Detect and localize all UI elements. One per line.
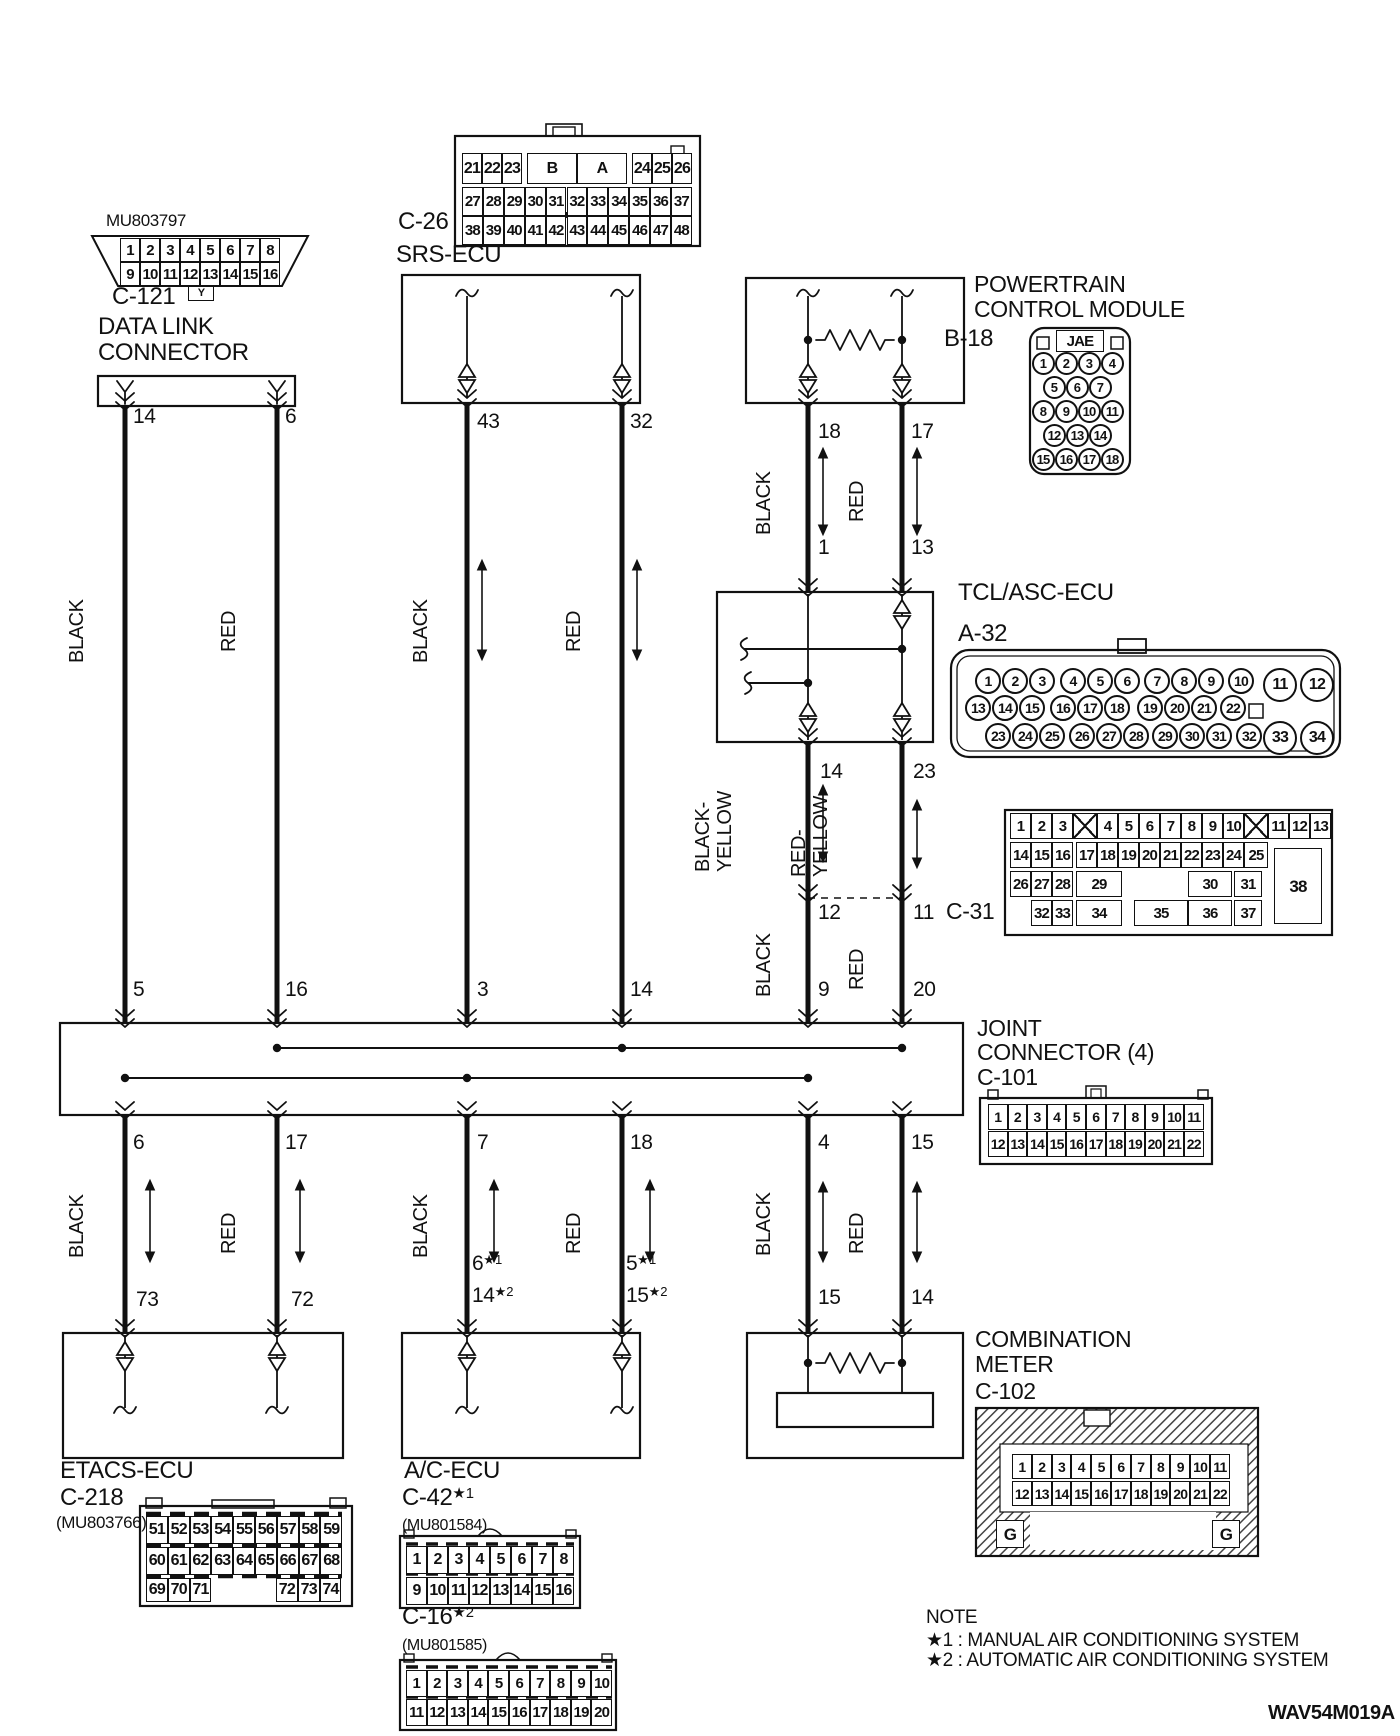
c16-pin: 20 [591,1699,612,1726]
c121-pin: 3 [160,238,180,262]
c102-pin: 1 [1012,1454,1032,1479]
c42-pin: 8 [553,1546,574,1574]
c26-pin: 24 [632,153,652,184]
c26-pin: 36 [650,187,671,216]
wire-color-label-line: YELLOW [810,796,832,877]
wire-color-label-line: BLACK [66,1194,88,1258]
c121-pin: 14 [220,262,240,286]
c26-pin: 41 [525,216,546,245]
component-name-ac: A/C-ECU [404,1458,500,1484]
wire-color-label-line: BLACK [753,933,775,997]
c101-pin: 19 [1125,1131,1145,1157]
c121-pin: 13 [200,262,220,286]
pin-number: 18 [818,420,841,443]
c218-pin: 68 [320,1547,342,1575]
pin-number: 18 [630,1131,653,1154]
c42-pin: 6 [511,1546,532,1574]
c101-pin: 8 [1125,1104,1145,1130]
c101-pin: 1 [988,1104,1008,1130]
pin-number-manual-suffix: ★1 [637,1252,656,1267]
c102-pin: 3 [1052,1454,1072,1479]
wire-color-label-line: RED [218,1213,240,1254]
c26-pin: 46 [629,216,650,245]
a32-pin: 28 [1123,723,1149,749]
c26-pin: 43 [567,216,588,245]
wire-color-label-line: RED [563,1213,585,1254]
c31-pin: 16 [1052,842,1073,868]
connector-id-b18: B-18 [944,326,993,352]
c31-pin: 17 [1076,842,1097,868]
b18-pin: 6 [1066,376,1089,399]
c31-pin: 32 [1031,900,1052,926]
c102-pin: 20 [1170,1481,1190,1506]
c218-pin: 66 [277,1547,299,1575]
c26-pin: 42 [546,216,567,245]
pin-number: 4 [818,1131,829,1154]
drawing-code: WAV54M019A [1268,1702,1395,1724]
connector-id-c102: C-102 [975,1379,1036,1404]
part-number-c121: MU803797 [106,212,186,231]
a32-pin: 16 [1050,695,1076,721]
c31-pin: 26 [1010,871,1031,897]
c16-pin: 12 [427,1699,448,1726]
c218-pin: 69 [146,1578,168,1602]
c218-pin: 62 [190,1547,212,1575]
c218-pin: 53 [190,1516,212,1544]
c26-pin: 31 [546,187,567,216]
c26-pin: 45 [608,216,629,245]
c31-pin: 25 [1244,842,1268,868]
note-line-1: ★1 : MANUAL AIR CONDITIONING SYSTEM [926,1631,1299,1652]
c31-blocked-cell [1073,813,1097,839]
wire-color-label-line: RED [218,611,240,652]
c42-pin: 15 [532,1577,553,1605]
c42-pin: 16 [553,1577,574,1605]
c102-pin: 16 [1091,1481,1111,1506]
c121-key-tab: Y [188,286,214,301]
c31-pin: 21 [1160,842,1181,868]
c26-pin: 21 [462,153,482,184]
c218-pin: 72 [276,1578,298,1602]
c31-pin: 36 [1188,900,1232,926]
a32-pin: 4 [1060,668,1086,694]
wire-color-label: BLACK [753,471,775,535]
c102-pin: 19 [1151,1481,1171,1506]
c26-pin: 37 [671,187,692,216]
c31-pin: 5 [1118,813,1139,839]
a32-pin: 24 [1012,723,1038,749]
c101-pin: 11 [1184,1104,1204,1130]
wire-color-label-line: BLACK [410,599,432,663]
c121-pin: 6 [220,238,240,262]
wire-color-label-line: YELLOW [714,791,736,872]
c26-pin: 48 [671,216,692,245]
connector-id-c42: C-42★1 [402,1485,474,1511]
component-name-srs: SRS-ECU [396,242,501,268]
pin-number: 3 [477,978,488,1001]
c31-pin: 3 [1052,813,1073,839]
wire-color-label: RED [218,611,240,652]
pin-number: 7 [477,1131,488,1154]
part-number-c218: (MU803766) [56,1514,147,1533]
a32-pin-large: 34 [1300,721,1334,755]
c16-pin: 18 [550,1699,571,1726]
c26-pin: 47 [650,216,671,245]
connector-id-c16-suffix: ★2 [452,1605,474,1621]
c26-pin: A [577,153,627,184]
c102-pin: 14 [1052,1481,1072,1506]
wire-color-label: BLACK-YELLOW [692,791,736,872]
c101-pin: 9 [1145,1104,1165,1130]
pin-number: 9 [818,978,829,1001]
pin-number: 13 [911,536,934,559]
c16-pin: 9 [571,1670,592,1697]
c42-pin: 4 [469,1546,490,1574]
c121-pin: 5 [200,238,220,262]
wire-color-label-line: RED [846,1213,868,1254]
c31-pin: 30 [1188,871,1232,897]
c31-pin: 31 [1234,871,1262,897]
c42-pin: 13 [490,1577,511,1605]
pin-number: 12 [818,901,841,924]
c101-pin: 20 [1145,1131,1165,1157]
a32-pin-large: 33 [1263,721,1297,755]
connector-id-c121: C-121 [112,284,175,310]
c121-pin: 15 [240,262,260,286]
component-name-tcl: TCL/ASC-ECU [958,580,1114,606]
pin-number: 5 [133,978,144,1001]
c31-pin: 15 [1031,842,1052,868]
c102-pin: 6 [1111,1454,1131,1479]
a32-pin: 6 [1114,668,1140,694]
wire-color-label-line: BLACK [410,1194,432,1258]
a32-pin: 23 [985,723,1011,749]
c31-pin: 35 [1134,900,1188,926]
pin-number: 17 [285,1131,308,1154]
c31-pin: 24 [1223,842,1244,868]
c16-pin: 8 [550,1670,571,1697]
c16-pin: 16 [509,1699,530,1726]
pin-number: 1 [818,536,829,559]
c16-pin: 14 [468,1699,489,1726]
a32-pin: 2 [1002,668,1028,694]
c101-pin: 21 [1164,1131,1184,1157]
wire-color-label: BLACK [753,1192,775,1256]
c101-pin: 5 [1066,1104,1086,1130]
c121-pin: 16 [260,262,280,286]
component-name-comb-1: COMBINATION [975,1327,1131,1352]
a32-pin: 13 [965,695,991,721]
c26-pin: 26 [672,153,692,184]
b18-pin: 15 [1032,448,1055,471]
c26-pin: 22 [482,153,502,184]
c31-pin: 29 [1076,871,1122,897]
c26-pin: 28 [483,187,504,216]
c16-pin: 17 [530,1699,551,1726]
c31-pin: 6 [1139,813,1160,839]
wire-color-label: BLACK [753,933,775,997]
pin-number: 72 [291,1288,314,1311]
c121-pin: 1 [120,238,140,262]
a32-pin: 21 [1191,695,1217,721]
c42-pin: 5 [490,1546,511,1574]
c26-pin: B [527,153,577,184]
pin-number: 6 [133,1131,144,1154]
a32-pin: 27 [1096,723,1122,749]
part-number-c42: (MU801584) [402,1517,487,1535]
wire-color-label-line: BLACK [753,471,775,535]
c101-pin: 3 [1027,1104,1047,1130]
pin-number-auto-num: 15 [626,1284,649,1307]
c101-pin: 18 [1106,1131,1126,1157]
c102-pin: 18 [1131,1481,1151,1506]
c42-pin: 3 [448,1546,469,1574]
wiring-diagram-page: 12345678910111213141516Y212223BA24252627… [0,0,1400,1736]
wire-color-label: BLACK [410,599,432,663]
c31-pin: 8 [1181,813,1202,839]
c102-pin: 12 [1012,1481,1032,1506]
c16-pin: 1 [406,1670,427,1697]
c31-pin: 11 [1268,813,1289,839]
note-heading: NOTE [926,1608,977,1629]
c102-pin: 15 [1071,1481,1091,1506]
connector-id-c16: C-16★2 [402,1604,474,1630]
c218-pin: 61 [168,1547,190,1575]
component-name-joint-2: CONNECTOR (4) [977,1040,1154,1065]
c101-pin: 10 [1164,1104,1184,1130]
c218-pin: 58 [299,1516,321,1544]
pin-number-auto-suffix: ★2 [649,1284,668,1299]
b18-pin: 9 [1055,400,1078,423]
c26-pin: 23 [502,153,522,184]
c102-pin: 10 [1190,1454,1210,1479]
pin-number: 16 [285,978,308,1001]
wire-color-label: RED [563,611,585,652]
pin-number-manual-suffix: ★1 [483,1252,502,1267]
c218-pin: 51 [146,1516,168,1544]
c218-pin: 73 [298,1578,320,1602]
pin-number: 73 [136,1288,159,1311]
pin-number: 14 [630,978,653,1001]
c42-pin: 1 [406,1546,427,1574]
b18-pin: 13 [1066,424,1089,447]
c218-pin: 74 [320,1578,342,1602]
wire-color-label: RED [846,949,868,990]
c31-pin: 19 [1118,842,1139,868]
c42-pin: 11 [448,1577,469,1605]
pin-number: 43 [477,410,500,433]
b18-maker-label: JAE [1056,330,1104,352]
c31-pin: 23 [1202,842,1223,868]
pin-number: 14 [820,760,843,783]
c31-pin-large: 38 [1274,848,1322,924]
connector-id-c26: C-26 [398,209,448,235]
c16-pin: 6 [509,1670,530,1697]
pin-number-manual: 5★1 [626,1252,656,1275]
c218-pin: 71 [190,1578,212,1602]
wire-color-label: RED-YELLOW [788,796,832,877]
c42-pin: 7 [532,1546,553,1574]
c31-pin: 34 [1076,900,1122,926]
c102-pin: 11 [1210,1454,1230,1479]
a32-pin: 8 [1171,668,1197,694]
a32-pin: 29 [1152,723,1178,749]
c26-pin: 32 [567,187,588,216]
c121-pin: 12 [180,262,200,286]
c102-pin: 22 [1210,1481,1230,1506]
c121-pin: 7 [240,238,260,262]
wire-color-label-line: BLACK [753,1192,775,1256]
c26-pin: 27 [462,187,483,216]
c101-pin: 6 [1086,1104,1106,1130]
pin-number-manual-num: 5 [626,1252,637,1275]
b18-pin: 5 [1043,376,1066,399]
wire-color-label-line: RED [846,949,868,990]
c121-pin: 8 [260,238,280,262]
c102-pin: 13 [1032,1481,1052,1506]
pin-number: 15 [911,1131,934,1154]
pin-number: 23 [913,760,936,783]
a32-pin: 18 [1104,695,1130,721]
c16-pin: 15 [488,1699,509,1726]
wire-color-label: RED [218,1213,240,1254]
connector-id-a32: A-32 [958,621,1007,647]
pin-number: 32 [630,410,653,433]
c16-pin: 7 [530,1670,551,1697]
b18-pin: 12 [1043,424,1066,447]
c102-ground-cell: G [996,1520,1024,1548]
pin-number: 11 [913,901,934,924]
c16-pin: 3 [447,1670,468,1697]
c101-pin: 17 [1086,1131,1106,1157]
b18-pin: 10 [1078,400,1101,423]
wire-color-label: BLACK [66,1194,88,1258]
c31-pin: 1 [1010,813,1031,839]
c101-pin: 13 [1008,1131,1028,1157]
component-name-comb-2: METER [975,1352,1054,1377]
pin-number: 14 [911,1286,934,1309]
c26-pin: 25 [652,153,672,184]
a32-pin: 9 [1198,668,1224,694]
pin-number: 20 [913,978,936,1001]
part-number-c16: (MU801585) [402,1637,487,1655]
c31-pin: 7 [1160,813,1181,839]
c31-pin: 18 [1097,842,1118,868]
c26-pin: 30 [525,187,546,216]
c42-pin: 9 [406,1577,427,1605]
c16-pin: 10 [591,1670,612,1697]
c218-pin: 63 [211,1547,233,1575]
b18-pin: 18 [1101,448,1124,471]
c218-pin: 65 [255,1547,277,1575]
c102-ground-cell: G [1212,1520,1240,1548]
a32-pin: 25 [1039,723,1065,749]
b18-pin: 7 [1089,376,1112,399]
wire-color-label-line: BLACK [66,599,88,663]
c26-pin: 35 [629,187,650,216]
component-name-etacs: ETACS-ECU [60,1458,193,1484]
c31-pin: 14 [1010,842,1031,868]
wire-color-label-line: RED [563,611,585,652]
c42-pin: 12 [469,1577,490,1605]
pin-number: 6 [285,405,296,428]
c26-pin: 33 [587,187,608,216]
pin-number: 14 [133,405,156,428]
wire-color-label: BLACK [66,599,88,663]
c16-pin: 11 [406,1699,427,1726]
pin-number: 15 [818,1286,841,1309]
b18-pin: 11 [1101,400,1124,423]
c31-pin: 9 [1202,813,1223,839]
a32-pin: 20 [1164,695,1190,721]
c26-pin: 29 [504,187,525,216]
c101-pin: 12 [988,1131,1008,1157]
a32-pin: 26 [1069,723,1095,749]
c31-pin: 20 [1139,842,1160,868]
a32-pin: 15 [1019,695,1045,721]
c102-pin: 21 [1190,1481,1210,1506]
b18-pin: 3 [1078,352,1101,375]
a32-pin: 3 [1029,668,1055,694]
c31-pin: 2 [1031,813,1052,839]
b18-pin: 16 [1055,448,1078,471]
c102-pin: 5 [1091,1454,1111,1479]
a32-pin: 19 [1137,695,1163,721]
c102-pin: 9 [1170,1454,1190,1479]
component-name-pcm-1: POWERTRAIN [974,272,1125,297]
c26-pin: 44 [587,216,608,245]
a32-pin: 1 [975,668,1001,694]
wire-color-label-line: BLACK- [692,791,714,872]
c31-pin: 37 [1234,900,1262,926]
b18-pin: 8 [1032,400,1055,423]
c102-pin: 4 [1071,1454,1091,1479]
a32-pin: 22 [1220,695,1246,721]
c16-pin: 2 [427,1670,448,1697]
note-line-2: ★2 : AUTOMATIC AIR CONDITIONING SYSTEM [926,1651,1328,1672]
pin-number-auto-num: 14 [472,1284,495,1307]
connector-id-c101: C-101 [977,1065,1038,1090]
c16-pin: 13 [447,1699,468,1726]
c101-pin: 7 [1106,1104,1126,1130]
a32-pin-large: 11 [1263,668,1297,702]
a32-pin: 31 [1206,723,1232,749]
c218-pin: 60 [146,1547,168,1575]
c31-pin: 28 [1052,871,1073,897]
c218-pin: 56 [255,1516,277,1544]
c121-pin: 2 [140,238,160,262]
a32-pin: 14 [992,695,1018,721]
c101-pin: 14 [1027,1131,1047,1157]
connector-id-c42-suffix: ★1 [452,1486,474,1502]
c218-pin: 57 [277,1516,299,1544]
c218-pin: 59 [320,1516,342,1544]
c102-pin: 17 [1111,1481,1131,1506]
c102-pin: 8 [1151,1454,1171,1479]
wire-color-label-line: RED [846,481,868,522]
a32-pin: 7 [1144,668,1170,694]
wire-color-label: BLACK [410,1194,432,1258]
c42-pin: 2 [427,1546,448,1574]
pin-number-auto: 15★2 [626,1284,667,1307]
connector-id-c16-id: C-16 [402,1603,452,1630]
pin-number-auto-suffix: ★2 [495,1284,514,1299]
a32-pin: 30 [1179,723,1205,749]
c31-pin: 27 [1031,871,1052,897]
wire-color-label-line: RED- [788,796,810,877]
component-name-joint-1: JOINT [977,1016,1041,1041]
b18-pin: 14 [1089,424,1112,447]
